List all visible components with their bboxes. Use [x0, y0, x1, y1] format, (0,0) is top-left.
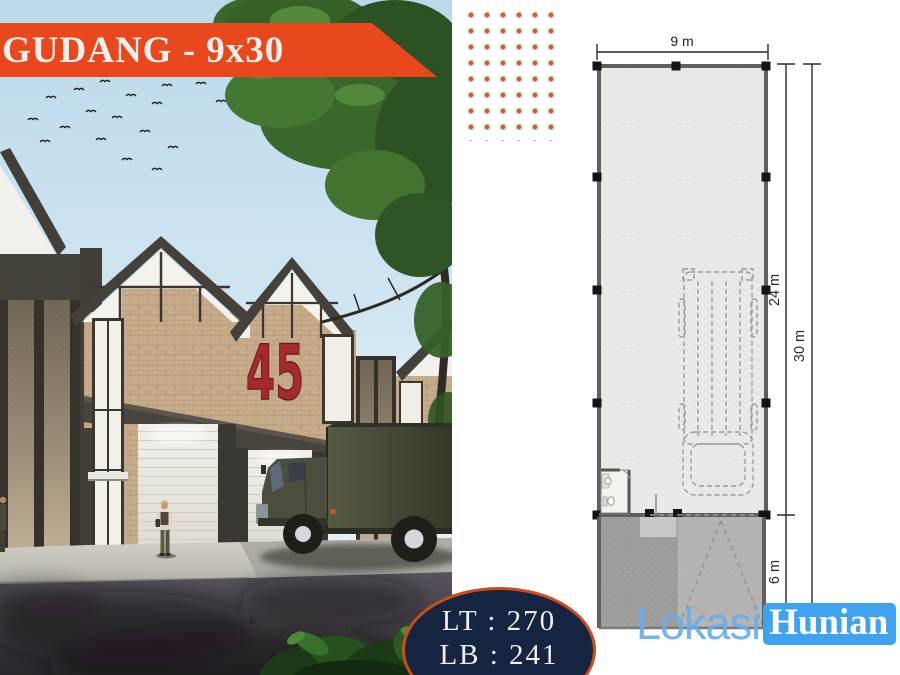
tall-window [88, 318, 128, 548]
brand-logo-part1: Lokasi [636, 601, 760, 646]
dim-total-label: 30 m [792, 330, 808, 362]
birds-flock [28, 80, 242, 170]
dim-hall-label: 24 m [767, 274, 783, 306]
dim-width-label: 9 m [670, 33, 693, 49]
dots-pattern [460, 5, 564, 141]
unit-number: 45 [246, 330, 304, 418]
roller-door-1 [138, 424, 218, 548]
floor-plan: 9 m [555, 30, 845, 642]
brand-logo: Lokasi Hunian [636, 601, 896, 646]
dim-front-label: 6 m [767, 560, 783, 584]
page-title: GUDANG - 9x30 [0, 32, 284, 69]
land-area-value: LT : 270 [442, 604, 556, 638]
title-banner: GUDANG - 9x30 [0, 23, 437, 77]
render-scene: 45 [0, 0, 452, 675]
building-area-value: LB : 241 [439, 638, 558, 672]
warehouse-render-photo: 45 [0, 0, 452, 675]
flyer-page: 45 [0, 0, 900, 675]
brand-logo-part2: Hunian [763, 603, 896, 645]
